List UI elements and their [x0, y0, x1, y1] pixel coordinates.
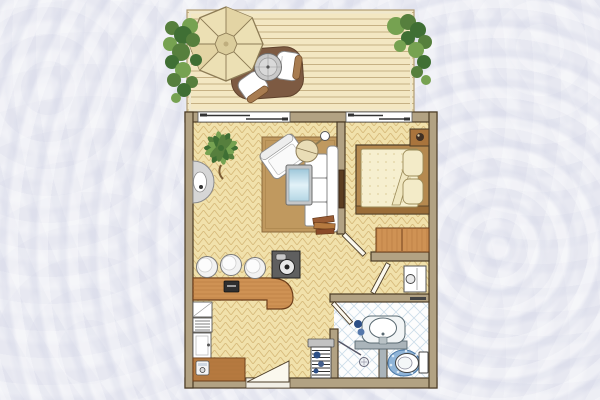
wall-right: [429, 112, 437, 388]
kitchen-sink-unit: [272, 251, 300, 278]
vented-appliance: [193, 318, 212, 332]
towel: [318, 361, 324, 367]
towels: [354, 320, 362, 328]
floor-plan-illustration: [0, 0, 600, 400]
lamp-base: [321, 132, 330, 141]
nightstand-lamp: [416, 133, 424, 141]
pillow-1: [403, 150, 423, 176]
floor-drain: [360, 358, 369, 367]
shower-partition: [379, 348, 387, 378]
towels: [358, 329, 365, 336]
toilet-tank: [419, 352, 428, 373]
wall-tv: [339, 170, 344, 208]
wardrobe: [376, 228, 429, 252]
towel-radiator: [308, 339, 334, 378]
vent: [410, 297, 426, 300]
towel: [314, 369, 319, 374]
parasol: [189, 7, 263, 81]
wall-left: [185, 112, 193, 388]
magazines: [313, 215, 336, 234]
sliding-door-bedroom: [346, 112, 412, 122]
nightstand: [410, 129, 429, 146]
coffee-table: [286, 165, 312, 205]
floor-plan-svg: [0, 0, 600, 400]
desk: [193, 358, 245, 381]
faucet: [276, 254, 286, 260]
telephone: [196, 361, 209, 375]
basin-faucet: [379, 337, 387, 344]
fridge: [193, 302, 212, 317]
sliding-door-living: [198, 112, 290, 122]
tall-cabinet: [193, 333, 211, 358]
pillow-2: [403, 179, 423, 204]
stool-1: [197, 257, 218, 278]
stool-3: [245, 258, 266, 279]
double-bed: [356, 145, 429, 214]
toilet: [388, 350, 428, 376]
minibar: [404, 266, 426, 292]
wall-corridor: [371, 252, 429, 261]
stool-2: [221, 255, 242, 276]
terrace: [163, 7, 432, 113]
towel: [314, 352, 321, 359]
terrace-table: [255, 54, 282, 81]
